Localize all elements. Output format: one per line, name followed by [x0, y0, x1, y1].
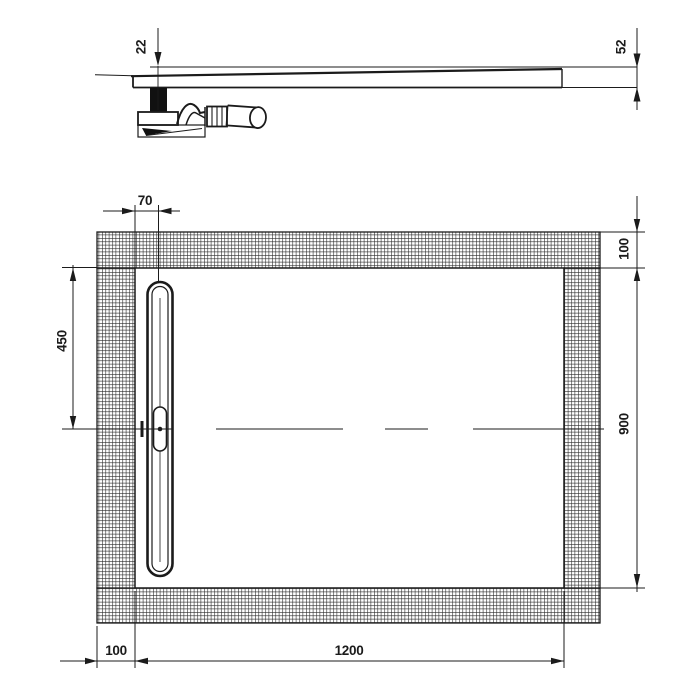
arrowhead — [85, 658, 97, 664]
flange-band-top — [97, 232, 600, 268]
dim-label-22: 22 — [134, 40, 149, 54]
siphon-bend-inner — [186, 113, 205, 126]
arrowhead — [70, 416, 76, 429]
dim-label-70: 70 — [138, 193, 152, 208]
arrowhead — [634, 219, 640, 232]
dimension-450: 450 — [55, 265, 98, 429]
arrowhead — [122, 208, 135, 214]
dimension-52: 52 — [614, 28, 641, 110]
tray-profile — [95, 67, 637, 88]
drain-trap-assembly — [138, 88, 267, 137]
flange-band-left — [97, 268, 135, 588]
dim-label-52: 52 — [614, 40, 629, 54]
arrowhead — [634, 88, 641, 102]
arrowhead — [551, 658, 564, 664]
dimension-100-right: 100 — [600, 196, 645, 592]
arrowhead — [135, 658, 148, 664]
dimension-900: 900 — [600, 413, 645, 588]
drain-axis-centerline — [62, 421, 604, 437]
arrowhead — [634, 268, 640, 281]
flange-band-bottom — [97, 588, 600, 623]
dim-label-100-right: 100 — [617, 238, 632, 260]
technical-drawing-svg: 22 52 — [0, 0, 700, 700]
outlet-pipe — [226, 105, 266, 129]
compression-nut — [207, 107, 227, 127]
dim-label-900: 900 — [617, 413, 632, 435]
plan-view: 70 450 100 900 — [55, 193, 646, 668]
arrowhead — [155, 52, 162, 66]
section-view: 22 52 — [95, 28, 641, 137]
trap-body — [138, 112, 178, 125]
arrowhead — [159, 208, 172, 214]
dim-label-450: 450 — [55, 330, 70, 352]
arrowhead — [70, 268, 76, 281]
tray-inner-edge — [135, 268, 564, 588]
arrowhead — [634, 574, 640, 588]
flange-band-right — [564, 268, 600, 588]
dim-label-1200: 1200 — [335, 643, 364, 658]
drain-pipe — [150, 88, 167, 112]
drawing-sheet: 22 52 — [0, 0, 700, 700]
arrowhead — [634, 54, 641, 68]
dim-label-100-bottom: 100 — [105, 643, 127, 658]
